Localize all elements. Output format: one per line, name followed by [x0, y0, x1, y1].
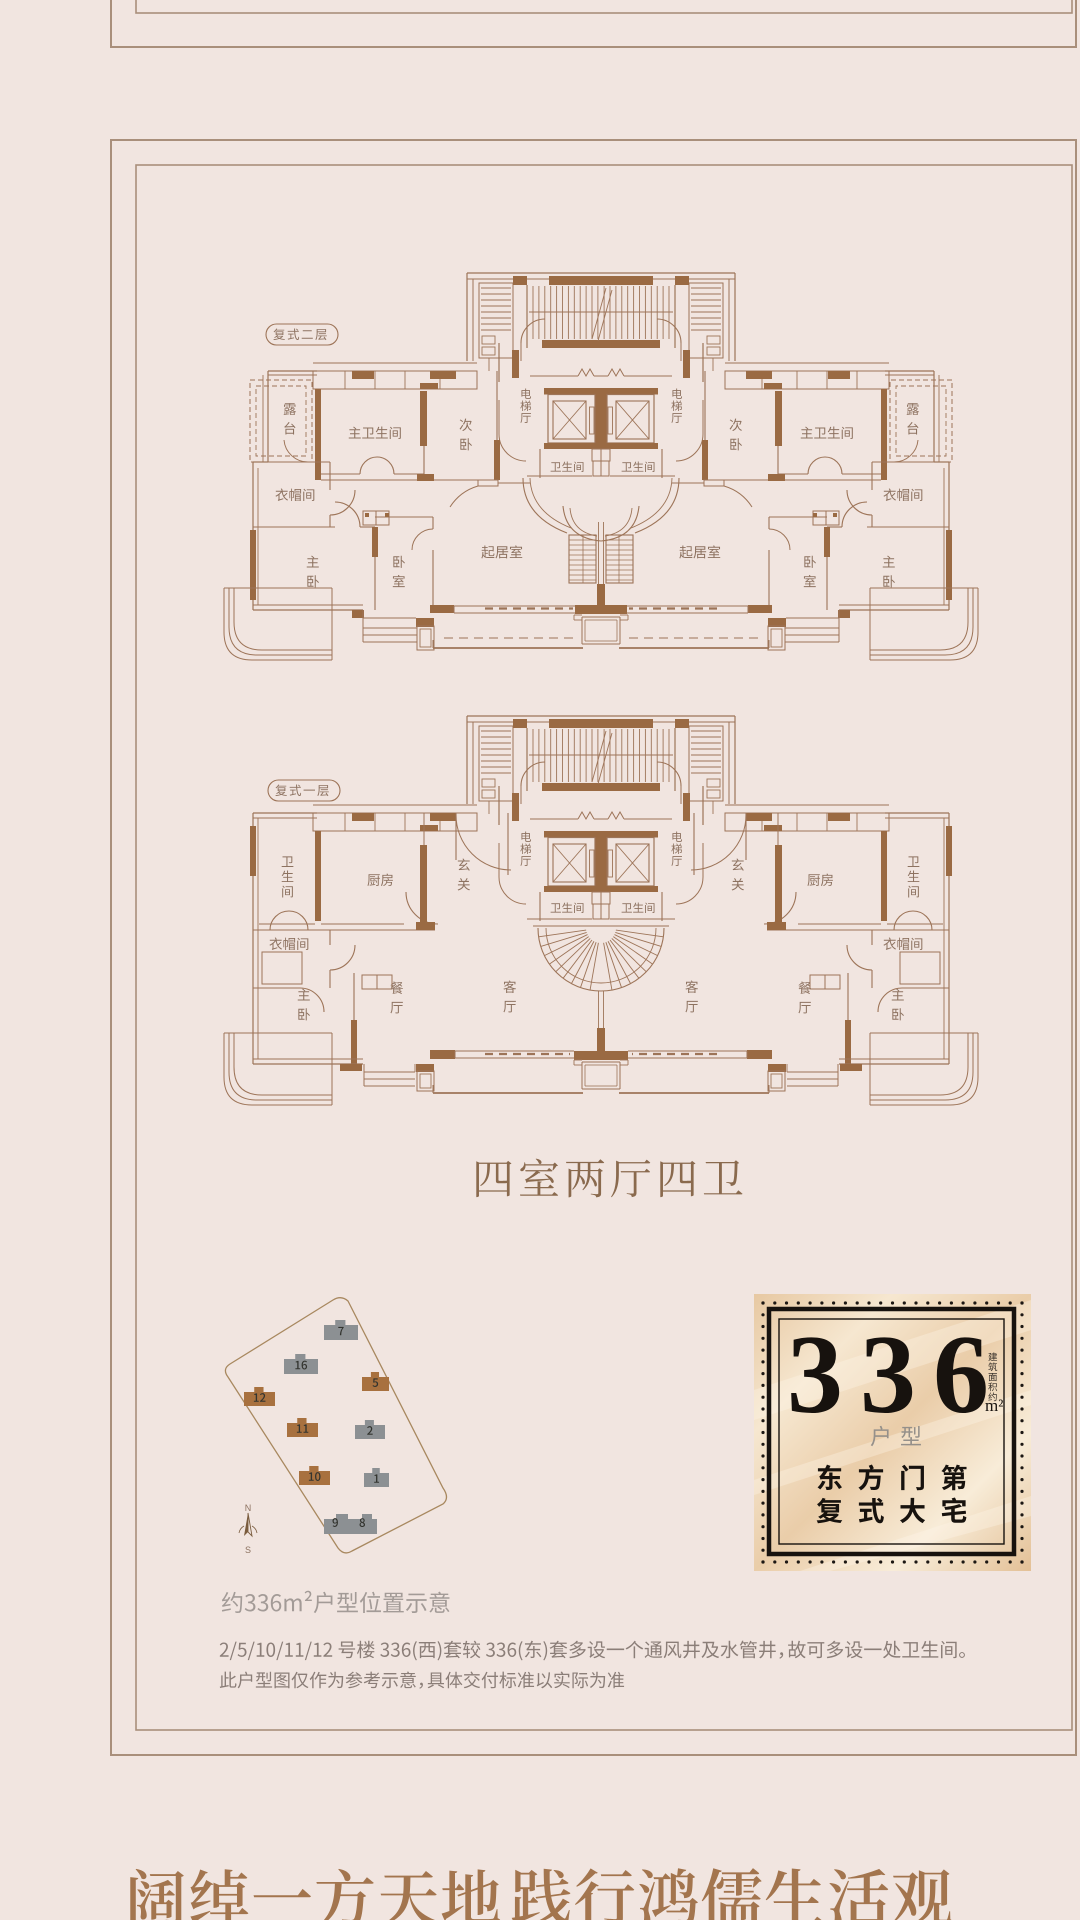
- svg-text:m²: m²: [985, 1396, 1003, 1415]
- svg-text:N: N: [245, 1503, 252, 1513]
- svg-text:336: 336: [787, 1313, 1006, 1437]
- svg-text:S: S: [245, 1545, 251, 1555]
